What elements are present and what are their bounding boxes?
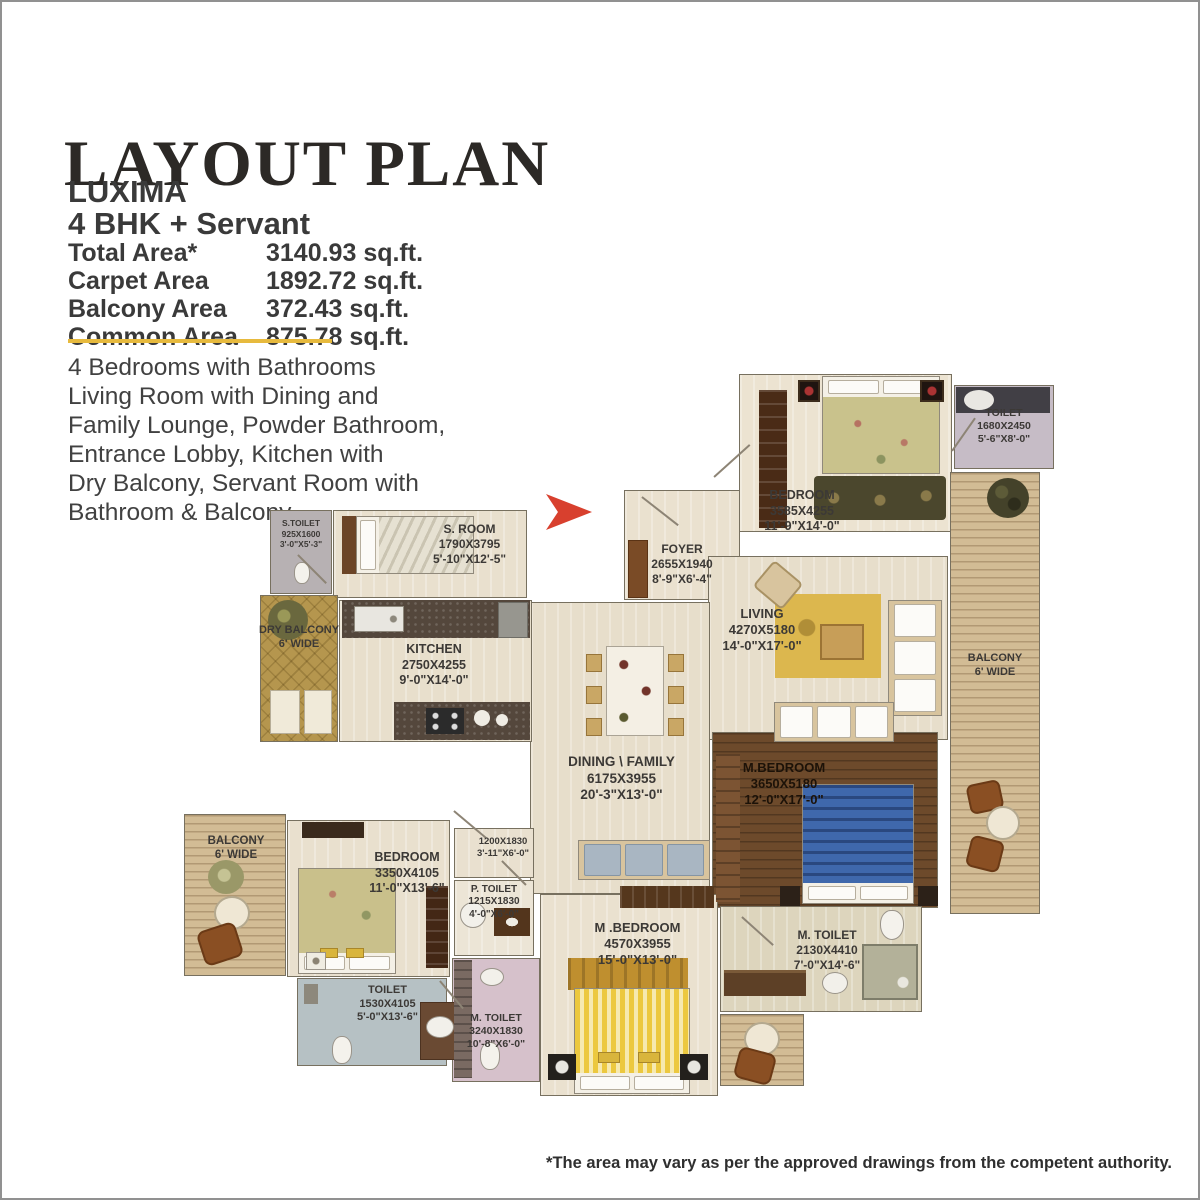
- room-label-master-toilet-right: M. TOILET2130X44107'-0"X14'-6": [772, 928, 882, 973]
- room-label-master-bedroom-right: M.BEDROOM3650X518012'-0"X17'-0": [724, 760, 844, 808]
- credenza-graphic: [620, 886, 714, 908]
- mat-graphic: [270, 690, 300, 734]
- pillow-graphic: [598, 1052, 620, 1063]
- washbasin-graphic: [480, 968, 504, 986]
- plant-graphic: [208, 860, 244, 894]
- chair-graphic: [586, 686, 602, 704]
- wardrobe-graphic: [426, 886, 448, 968]
- hob-graphic: [426, 708, 464, 734]
- floor-plan: BEDROOM3585X425511'-9"X14'-0" TOILET1680…: [2, 2, 1198, 1198]
- chair-graphic: [668, 718, 684, 736]
- sink-graphic: [354, 606, 404, 632]
- fridge-graphic: [498, 602, 528, 638]
- dining-table-graphic: [606, 646, 664, 736]
- room-label-foyer: FOYER2655X19408'-9"X6'-4": [632, 542, 732, 587]
- wc-graphic: [332, 1036, 352, 1064]
- room-label-living: LIVING4270X518014'-0"X17'-0": [707, 606, 817, 654]
- plate-graphic: [474, 710, 490, 726]
- side-table-graphic: [798, 380, 820, 402]
- washbasin-graphic: [822, 972, 848, 994]
- side-table-graphic: [306, 952, 326, 970]
- sofa-graphic: [888, 600, 942, 716]
- nightstand-graphic: [680, 1054, 708, 1080]
- side-table-graphic: [920, 380, 944, 402]
- nightstand-graphic: [918, 886, 938, 906]
- pillow-graphic: [346, 948, 364, 958]
- room-label-dining-family: DINING \ FAMILY6175X395520'-3"X13'-0": [554, 754, 689, 804]
- coffee-table-graphic: [820, 624, 864, 660]
- pillow-graphic: [638, 1052, 660, 1063]
- chair-graphic: [586, 718, 602, 736]
- room-label-toilet-left: TOILET1530X41055'-0"X13'-6": [340, 984, 435, 1025]
- disclaimer: *The area may vary as per the approved d…: [546, 1154, 1172, 1173]
- room-label-servant-room: S. ROOM1790X37955'-10"X12'-5": [417, 522, 522, 567]
- room-label-passage: 1200X18303'-11"X6'-0": [474, 836, 532, 860]
- nightstand-graphic: [780, 886, 800, 906]
- room-label-master-toilet-center: M. TOILET3240X183010'-8"X6'-0": [457, 1012, 535, 1051]
- room-label-servant-toilet: S.TOILET925X16003'-0"X5'-3": [272, 518, 330, 550]
- entrance-arrow-icon: [546, 494, 592, 530]
- mat-graphic: [304, 690, 332, 734]
- room-label-bedroom-left: BEDROOM3350X410511'-0"X13'-6": [352, 850, 462, 897]
- chair-graphic: [668, 654, 684, 672]
- room-label-balcony-right: BALCONY6' WIDE: [954, 652, 1036, 679]
- room-label-powder-toilet: P. TOILET1215X18304'-0"X6'-0": [457, 884, 531, 921]
- round-table-graphic: [986, 806, 1020, 840]
- bed-graphic: [574, 988, 690, 1094]
- plate-graphic: [496, 714, 508, 726]
- room-label-dry-balcony: DRY BALCONY6' WIDE: [262, 624, 336, 651]
- chair-graphic: [668, 686, 684, 704]
- room-label-master-bedroom-bottom: M .BEDROOM4570X395515'-0"X13'-0": [580, 920, 695, 968]
- shower-graphic: [304, 984, 318, 1004]
- layout-plan-page: LAYOUT PLAN LUXIMA 4 BHK + Servant Total…: [0, 0, 1200, 1200]
- vanity-counter-graphic: [724, 970, 806, 996]
- nightstand-graphic: [548, 1054, 576, 1080]
- room-label-toilet-top: TOILET1680X24505'-6"X8'-0": [960, 407, 1048, 446]
- sofa-graphic: [774, 702, 894, 742]
- room-label-balcony-left: BALCONY6' WIDE: [194, 834, 278, 863]
- tv-unit-graphic: [302, 822, 364, 838]
- wc-graphic: [880, 910, 904, 940]
- sofa-graphic: [578, 840, 710, 880]
- plant-graphic: [987, 478, 1029, 518]
- bed-frame-graphic: [342, 516, 356, 574]
- room-label-bedroom-top: BEDROOM3585X425511'-9"X14'-0": [746, 488, 858, 535]
- chair-graphic: [586, 654, 602, 672]
- room-label-kitchen: KITCHEN2750X42559'-0"X14'-0": [384, 642, 484, 689]
